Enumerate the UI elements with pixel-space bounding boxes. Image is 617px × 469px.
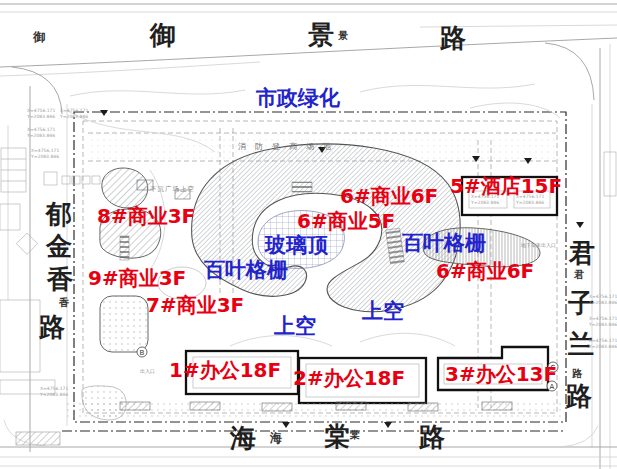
grid-bubble-b: B: [140, 349, 145, 357]
coordinate-note: X=4756.171Y=2083.846: [31, 148, 59, 159]
annotation-sunken-plaza: 下沉广场上空: [150, 186, 195, 193]
road-top-small-mid-char: 景: [338, 31, 348, 41]
coordinate-note: X=4756.171Y=2083.846: [27, 127, 55, 138]
label-building-6-commercial-5f: 6#商业5F: [297, 211, 395, 231]
road-top-char-1: 御: [150, 22, 176, 48]
road-right-char-1: 君: [569, 240, 595, 266]
label-building-8-commercial-3f: 8#商业3F: [97, 206, 195, 226]
road-right-char-4: 路: [566, 383, 592, 409]
road-top-char-2: 景: [308, 22, 334, 48]
bottom-road-linework: [0, 420, 617, 466]
label-glass-roof: 玻璃顶: [265, 235, 328, 256]
label-municipal-green: 市政绿化: [256, 88, 340, 109]
coordinate-note: X=4756.171Y=2083.846: [589, 338, 617, 349]
site-plan-drawing: B C A 御 御 景 景 路 郁 金 香 香 路 君 君 子 兰 路 路 海 …: [0, 0, 617, 469]
label-open-above-right: 上空: [362, 301, 404, 322]
coordinate-note: X=4756.171Y=2083.846: [40, 386, 68, 397]
coordinate-note: X=4756.171Y=2083.846: [60, 108, 88, 119]
road-left-char-4: 路: [39, 314, 65, 340]
label-building-3-office-13f: 3#办公13F: [445, 364, 557, 384]
road-left-char-2: 金: [46, 233, 72, 259]
walkway-arcs: [230, 333, 455, 346]
annotation-garage-entry: 地下车库出入口: [521, 243, 556, 248]
coordinate-note: X=4756.171Y=2083.846: [589, 294, 617, 305]
coordinate-note: X=4756.171Y=2083.846: [589, 316, 617, 327]
road-left-char-3: 香: [47, 266, 73, 292]
coordinate-note: X=4756.171Y=2083.846: [471, 194, 499, 205]
road-left-small-char: 香: [59, 298, 69, 308]
label-building-5-hotel-15f: 5#酒店15F: [450, 176, 562, 196]
road-bottom-small-hai: 海: [270, 432, 282, 444]
road-bottom-char-1: 海: [230, 425, 256, 451]
annotation-fire-lane: 消防登高场地: [238, 143, 340, 151]
coordinate-note: X=4756.171Y=2083.846: [27, 108, 55, 119]
label-building-7-commercial-3f: 7#商业3F: [146, 295, 244, 315]
label-building-1-office-18f: 1#办公18F: [169, 360, 281, 380]
road-right-small-bottom-char: 路: [572, 369, 582, 379]
road-top-small-char: 御: [33, 31, 45, 43]
label-louver-grille-left: 百叶格栅: [204, 260, 288, 281]
road-bottom-char-2: 棠: [324, 423, 350, 449]
road-top-char-3: 路: [440, 25, 466, 51]
label-building-6-commercial-6f-upper: 6#商业6F: [340, 186, 438, 206]
label-building-2-office-18f: 2#办公18F: [293, 368, 405, 388]
road-bottom-char-3: 路: [419, 424, 445, 450]
label-building-6-commercial-6f-lower: 6#商业6F: [436, 261, 534, 281]
west-commercial-blobs: [62, 168, 206, 352]
label-louver-grille-right: 百叶格栅: [402, 233, 486, 254]
label-open-above-left: 上空: [274, 316, 316, 337]
label-building-9-commercial-3f: 9#商业3F: [88, 268, 186, 288]
road-right-small-top-char: 君: [574, 270, 584, 280]
road-bottom-small-tang: 棠: [350, 430, 360, 440]
coordinate-note: X=4756.171Y=2083.846: [516, 194, 544, 205]
road-left-char-1: 郁: [46, 201, 72, 227]
annotation-entry: 出入口: [140, 369, 155, 374]
